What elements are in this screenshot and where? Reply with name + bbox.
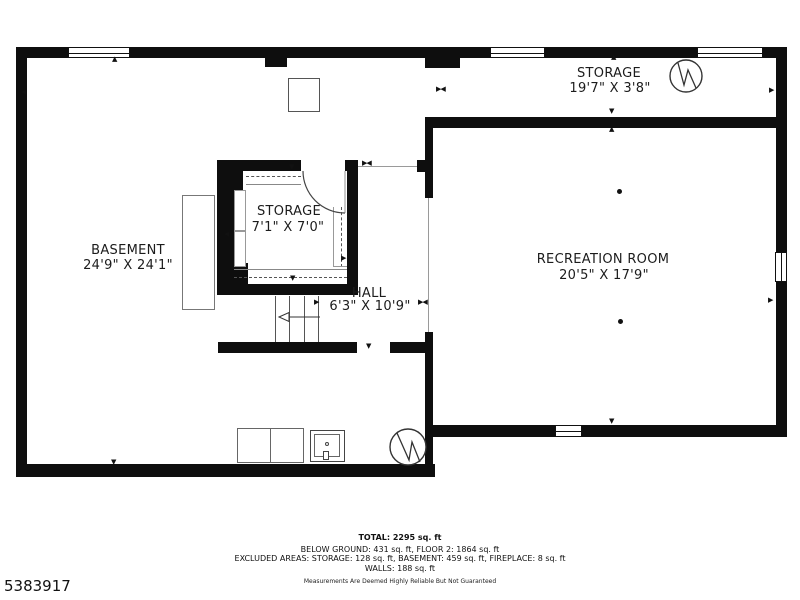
room-dims-storage-top: 19'7" X 3'8" [569, 81, 650, 96]
dryer [270, 428, 304, 463]
dimension-marker: ▼ [289, 164, 293, 171]
room-name-storage-closet: STORAGE [257, 204, 321, 219]
sink-drain [325, 442, 329, 446]
dimension-marker: ▶ [314, 299, 318, 306]
dimension-marker: ▶◀ [436, 86, 445, 93]
dimension-marker: ▶◀ [362, 160, 371, 167]
dimension-marker: ▼ [609, 108, 613, 115]
wall-hall-bottom [218, 342, 357, 353]
washer [237, 428, 271, 463]
dimension-marker: ▶ [341, 255, 345, 262]
wall-bottom-basement [16, 464, 435, 477]
floor-plan: STORAGE 19'7" X 3'8" RECREATION ROOM 20'… [0, 0, 800, 600]
wall-closet-left-block-bottom [217, 263, 248, 295]
wall-left [16, 47, 27, 477]
total-area-text: TOTAL: 2295 sq. ft [0, 533, 800, 543]
dimension-marker: ▼ [111, 459, 115, 466]
closet-shelf-top-edge [246, 184, 301, 185]
closet-shelf-top-dash [246, 176, 301, 177]
dimension-marker: ▼ [609, 418, 613, 425]
disclaimer-text: Measurements Are Deemed Highly Reliable … [0, 578, 800, 586]
wall-closet-left-block-top [217, 160, 243, 190]
room-dims-hall: 6'3" X 10'9" [329, 299, 410, 314]
dimension-marker: ▼ [290, 275, 294, 282]
dimension-marker: ▼ [366, 343, 370, 350]
excluded-areas-text: EXCLUDED AREAS: STORAGE: 128 sq. ft, BAS… [0, 554, 800, 564]
room-name-recreation: RECREATION ROOM [537, 252, 670, 267]
utility-sink [310, 430, 345, 462]
closet-shelf-bottom-edge [234, 269, 347, 270]
dimension-marker: ▲ [611, 54, 615, 61]
support-post-dot [617, 189, 622, 194]
room-dims-storage-closet: 7'1" X 7'0" [252, 220, 325, 235]
window-top-3 [697, 47, 763, 58]
support-post-dot [618, 319, 623, 324]
wall-hall-bottom-stub [390, 342, 433, 353]
wall-pier-top-1 [265, 47, 287, 67]
dimension-marker: ▲ [112, 56, 116, 63]
fireplace-chimney [288, 78, 320, 112]
room-dims-basement: 24'9" X 24'1" [83, 258, 173, 273]
sink-faucet [323, 451, 329, 460]
wall-divider-storage-recreation [425, 117, 777, 128]
walls-area-text: WALLS: 188 sq. ft [0, 564, 800, 574]
window-recreation-bottom [555, 425, 582, 437]
stair-tread [275, 296, 276, 342]
window-top-2 [490, 47, 545, 58]
zigzag-circle-icon [390, 429, 426, 465]
dimension-marker: ◀ [224, 231, 228, 238]
stair-direction-arrowhead [279, 313, 289, 322]
window-right [775, 252, 787, 282]
wall-pier-top-2 [425, 47, 460, 68]
stair-tread [289, 296, 290, 342]
dimension-marker: ▶◀ [418, 299, 427, 306]
stair-tread [304, 296, 305, 342]
listing-id: 5383917 [4, 577, 71, 595]
wall-top [16, 47, 787, 58]
dimension-marker: ▲ [609, 126, 613, 133]
closet-shelf-left-1 [234, 190, 246, 231]
dimension-marker: ▶ [769, 87, 773, 94]
opening-line-hall-recreation [428, 198, 429, 332]
dimension-marker: ◀ [21, 89, 25, 96]
utility-unit [182, 195, 215, 310]
wall-right [776, 47, 787, 437]
room-dims-recreation: 20'5" X 17'9" [559, 268, 649, 283]
closet-shelf-left-2 [234, 231, 246, 267]
room-name-basement: BASEMENT [91, 243, 165, 258]
wall-hall-recreation-upper [425, 117, 433, 198]
wall-bottom-recreation [427, 425, 787, 437]
room-name-storage-top: STORAGE [577, 66, 641, 81]
wall-closet-right [347, 160, 358, 295]
dimension-marker: ▶ [768, 297, 772, 304]
zigzag-circle-icon [670, 60, 702, 92]
window-top-1 [68, 47, 130, 58]
wall-stub-hall-top [417, 160, 426, 172]
